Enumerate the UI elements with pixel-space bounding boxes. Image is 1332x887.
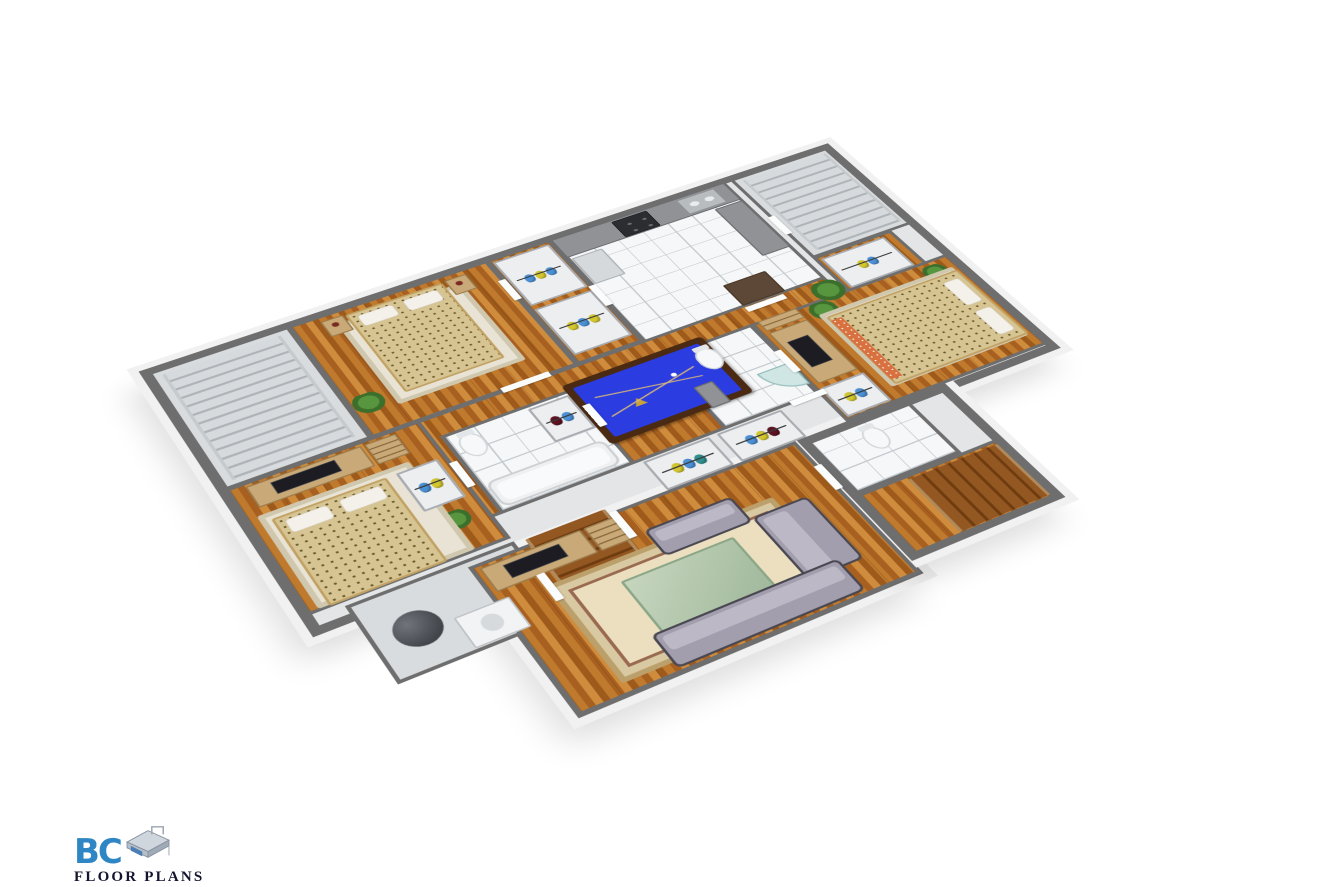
yellow-clothes-icon: [668, 462, 685, 474]
floor-plan-canvas: BC FLOOR PLANS: [0, 0, 1332, 887]
blue-clothes-icon: [416, 481, 433, 494]
red-clothes-icon: [548, 415, 565, 427]
logo-subtitle-text: FLOOR PLANS: [74, 869, 254, 886]
bc-floor-plans-logo: BC FLOOR PLANS: [74, 833, 254, 886]
yellow-clothes-icon: [564, 321, 580, 332]
blue-clothes-icon: [522, 273, 538, 283]
logo-row: BC: [74, 833, 254, 867]
yellow-clothes-icon: [842, 391, 859, 402]
pillow: [402, 289, 445, 311]
floorplan-logo-icon: [119, 823, 177, 867]
yellow-clothes-icon: [855, 259, 871, 269]
floor-plan-3d: [128, 137, 1209, 804]
blue-clothes-icon: [742, 434, 759, 446]
logo-brand-text: BC: [74, 837, 121, 867]
